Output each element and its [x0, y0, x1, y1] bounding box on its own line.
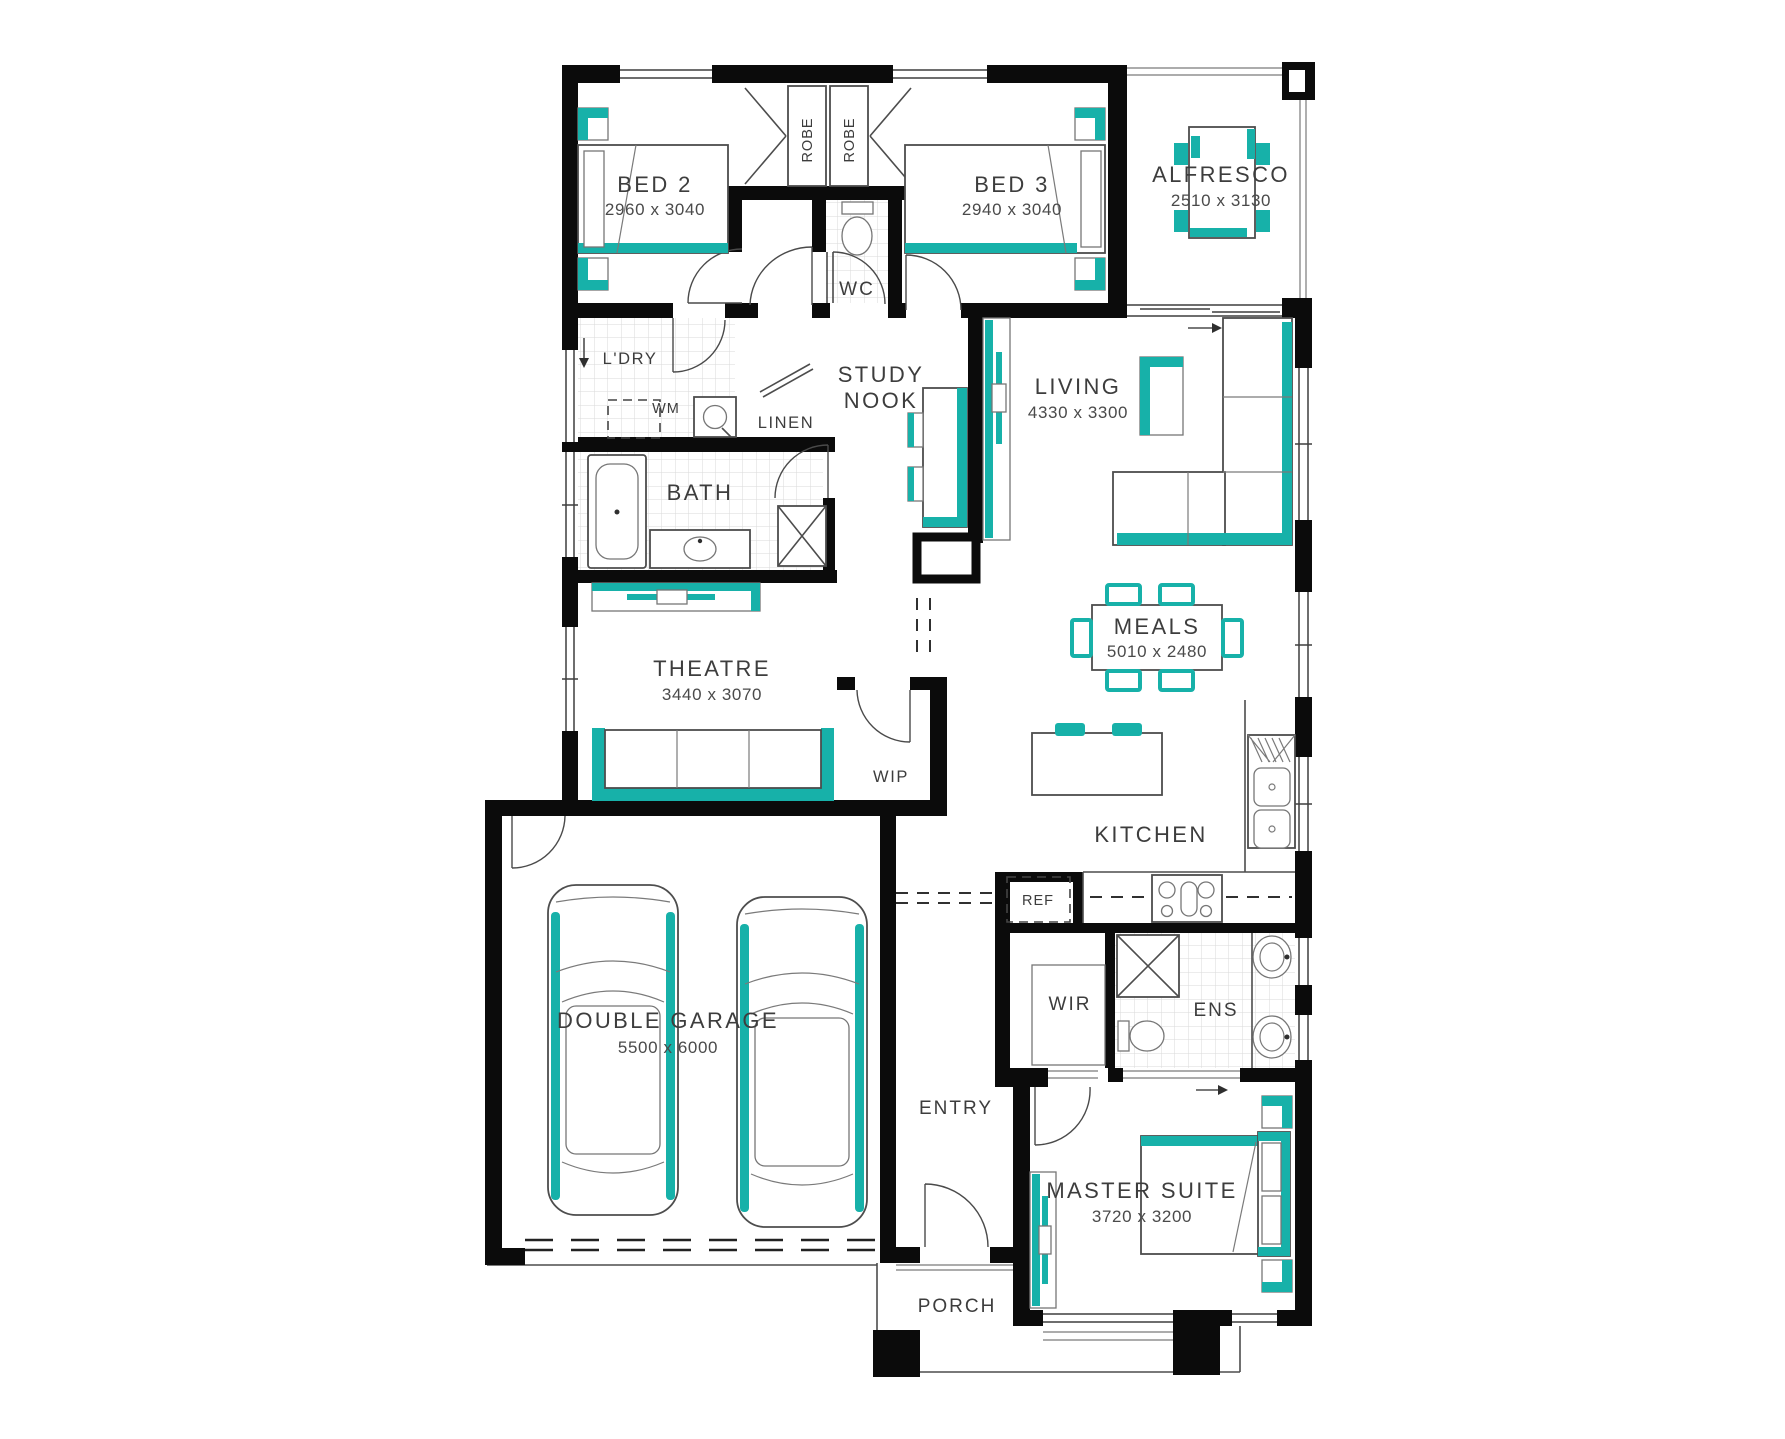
room-label-ens: ENS: [1193, 1000, 1238, 1021]
room-dims-alfresco: 2510 x 3130: [1171, 191, 1271, 210]
room-label-bath: BATH: [667, 480, 734, 505]
room-label-living: LIVING: [1035, 374, 1122, 399]
room-label-alfresco: ALFRESCO: [1152, 162, 1290, 187]
entry-arrow-living-icon: [1212, 323, 1222, 333]
room-label-kitchen: KITCHEN: [1094, 822, 1207, 847]
room-label-bed2: BED 2: [617, 172, 693, 197]
room-dims-garage: 5500 x 6000: [618, 1038, 718, 1057]
floor-plan-page: BED 2 2960 x 3040 BED 3 2940 x 3040 ALFR…: [0, 0, 1785, 1439]
room-dims-theatre: 3440 x 3070: [662, 685, 762, 704]
room-label-wir: WIR: [1049, 994, 1092, 1015]
floor-plan-svg: BED 2 2960 x 3040 BED 3 2940 x 3040 ALFR…: [0, 0, 1785, 1439]
room-dims-bed3: 2940 x 3040: [962, 200, 1062, 219]
label-robe-1: ROBE: [800, 117, 816, 162]
room-label-bed3: BED 3: [974, 172, 1050, 197]
room-label-theatre: THEATRE: [653, 656, 771, 681]
room-label-wc: WC: [839, 279, 875, 300]
room-label-study-1: STUDY: [838, 362, 925, 387]
room-label-wip: WIP: [873, 768, 909, 786]
room-dims-master: 3720 x 3200: [1092, 1207, 1192, 1226]
room-label-meals: MEALS: [1114, 614, 1201, 639]
room-label-study-2: NOOK: [844, 388, 918, 413]
room-dims-meals: 5010 x 2480: [1107, 642, 1207, 661]
room-dims-bed2: 2960 x 3040: [605, 200, 705, 219]
room-label-porch: PORCH: [918, 1296, 997, 1317]
label-wm: WM: [652, 401, 680, 417]
room-label-master: MASTER SUITE: [1046, 1178, 1237, 1203]
room-label-garage: DOUBLE GARAGE: [557, 1008, 779, 1033]
room-dims-living: 4330 x 3300: [1028, 403, 1128, 422]
entry-arrow-ens-icon: [1218, 1085, 1228, 1095]
label-robe-2: ROBE: [842, 117, 858, 162]
label-linen: LINEN: [758, 414, 815, 432]
room-label-ldry: L'DRY: [603, 350, 658, 368]
room-label-entry: ENTRY: [919, 1098, 993, 1119]
label-ref: REF: [1022, 893, 1054, 909]
